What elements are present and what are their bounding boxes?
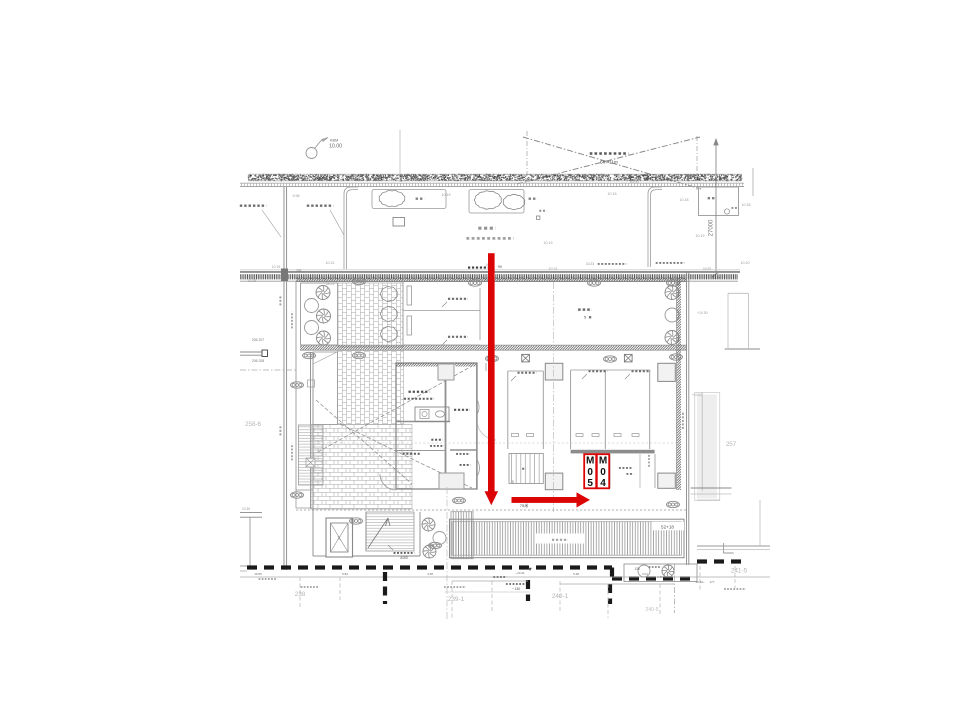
- svg-text:206 207: 206 207: [252, 338, 264, 342]
- svg-text:241-5: 241-5: [731, 568, 748, 575]
- svg-text:+10.30: +10.30: [697, 311, 708, 315]
- svg-text:10.15: 10.15: [608, 192, 617, 196]
- svg-text:10.20: 10.20: [741, 261, 750, 265]
- svg-text:27000: 27000: [709, 219, 715, 236]
- svg-text:4.48: 4.48: [427, 572, 433, 576]
- svg-text:240-5: 240-5: [645, 607, 658, 613]
- svg-text:10.19: 10.19: [544, 241, 553, 245]
- svg-text:208: 208: [296, 269, 302, 273]
- svg-text:5: 5: [511, 480, 513, 484]
- svg-text:M: M: [586, 456, 594, 467]
- svg-text:238: 238: [295, 591, 306, 598]
- svg-text:~ 130: ~ 130: [512, 587, 520, 591]
- svg-text:257: 257: [726, 441, 737, 448]
- svg-text:5: 5: [587, 478, 593, 489]
- svg-text:258-6: 258-6: [245, 421, 261, 428]
- svg-text:239-1: 239-1: [448, 596, 465, 603]
- svg-text:9.98: 9.98: [293, 194, 300, 198]
- svg-text:#100: #100: [400, 556, 408, 560]
- svg-text:·95: ·95: [497, 265, 502, 269]
- svg-text:~10.41: ~10.41: [515, 571, 525, 575]
- svg-text:10.49~: 10.49~: [695, 580, 705, 584]
- svg-text:0: 0: [600, 467, 606, 478]
- svg-text:10.00: 10.00: [630, 180, 639, 184]
- svg-text:4: 4: [600, 478, 606, 489]
- svg-text:52+18: 52+18: [661, 525, 674, 530]
- svg-text:10.19: 10.19: [272, 265, 281, 269]
- svg-text:135: 135: [634, 567, 640, 571]
- svg-text:5.28: 5.28: [573, 572, 579, 576]
- svg-text:240-1: 240-1: [552, 593, 569, 600]
- svg-text:0: 0: [587, 467, 593, 478]
- svg-text:10.18: 10.18: [742, 203, 751, 207]
- svg-text:177: 177: [709, 580, 714, 584]
- svg-text:3.01: 3.01: [642, 572, 648, 576]
- svg-text:5m×11m: 5m×11m: [600, 160, 618, 165]
- svg-text:+10.52: +10.52: [692, 393, 702, 397]
- svg-text:10.36: 10.36: [242, 507, 250, 511]
- svg-text:10.00: 10.00: [329, 144, 342, 150]
- svg-text:0.80: 0.80: [657, 575, 663, 579]
- svg-text:M: M: [599, 456, 607, 467]
- svg-text:10.55: 10.55: [254, 572, 262, 576]
- svg-text:5.84: 5.84: [342, 572, 348, 576]
- svg-text:10.18: 10.18: [680, 198, 689, 202]
- svg-text:10.21: 10.21: [326, 261, 335, 265]
- svg-text:10.19: 10.19: [696, 234, 705, 238]
- svg-text:206 208: 206 208: [252, 359, 264, 363]
- svg-text:10.23: 10.23: [586, 262, 594, 266]
- svg-text:KBM: KBM: [330, 139, 338, 143]
